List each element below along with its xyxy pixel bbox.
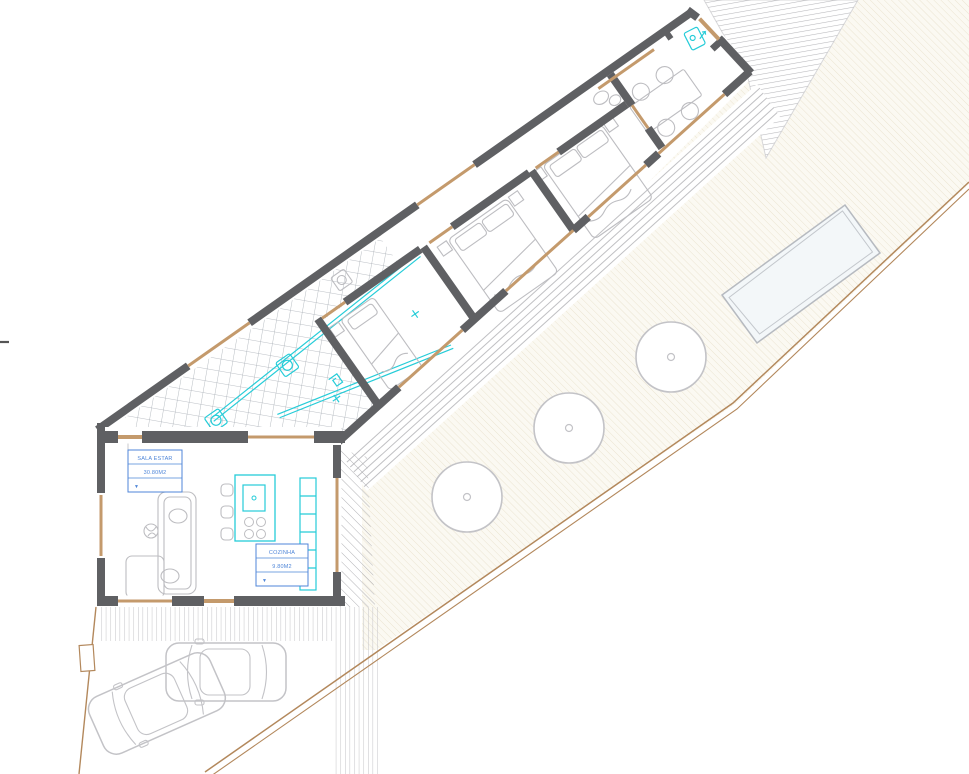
car-1 (166, 639, 286, 705)
room-area: 9.80M2 (272, 564, 292, 570)
floor-plan-canvas: SALA ESTAR 30.80M2 ▼ COZINHA 9.80M2 ▼ (0, 0, 969, 774)
room-symbol: ▼ (262, 578, 267, 584)
front-paving-strip (101, 607, 333, 641)
room-name: SALA ESTAR (137, 456, 172, 462)
room-area: 30.80M2 (144, 470, 167, 476)
room-name: COZINHA (269, 550, 295, 556)
living-block: SALA ESTAR 30.80M2 ▼ COZINHA 9.80M2 ▼ (97, 423, 345, 603)
tree (636, 322, 706, 392)
room-label-kitchen: COZINHA 9.80M2 ▼ (256, 544, 308, 586)
boundary-west (79, 607, 96, 774)
car-2 (83, 646, 231, 762)
floor-plan-drawing: SALA ESTAR 30.80M2 ▼ COZINHA 9.80M2 ▼ (0, 0, 969, 774)
room-symbol: ▼ (134, 484, 139, 490)
tree (534, 393, 604, 463)
tree (432, 462, 502, 532)
side-path-strip (333, 607, 378, 774)
room-label-living: SALA ESTAR 30.80M2 ▼ (128, 450, 182, 492)
gate-post (79, 645, 95, 672)
